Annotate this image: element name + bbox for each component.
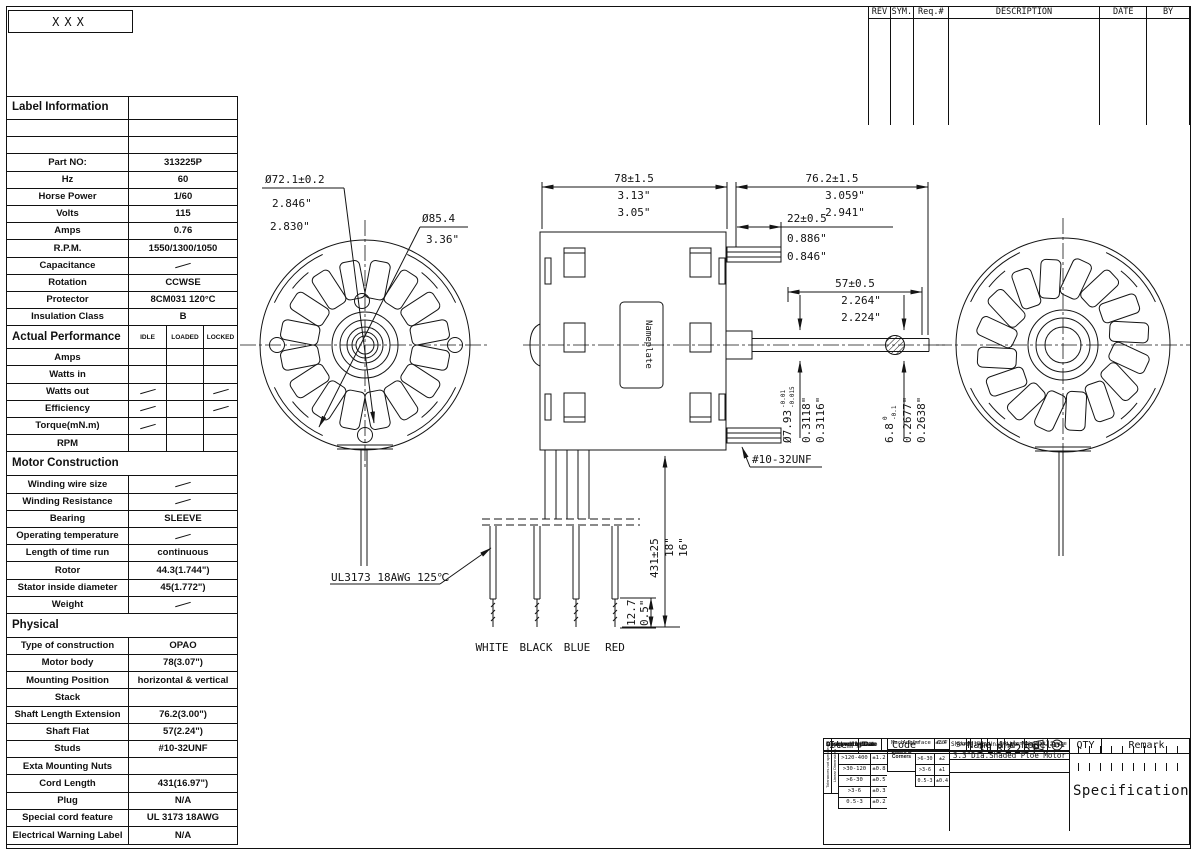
rev-header: BY <box>1147 6 1189 19</box>
spec-row: Hz60 <box>7 172 237 189</box>
spec-value: OPAO <box>129 638 237 654</box>
spec-row: Efficiency <box>7 401 237 418</box>
spec-cell: LOADED <box>166 326 203 348</box>
spec-label: Weight <box>7 597 129 613</box>
spec-value: 57(2.24") <box>129 724 237 740</box>
spec-value: B <box>129 309 237 325</box>
spec-value <box>129 97 237 119</box>
wire-color-red: RED <box>605 641 625 654</box>
spec-label: Bearing <box>7 511 129 527</box>
slash-mark <box>213 404 229 413</box>
dim-label: 18" <box>663 537 676 557</box>
tb-tolerance-cell: >120-400 <box>838 754 870 765</box>
spec-cell <box>203 435 237 451</box>
spec-value: 45(1.772") <box>129 580 237 596</box>
spec-row: Cord Length431(16.97") <box>7 775 237 792</box>
tb-approved-value <box>881 739 949 751</box>
spec-label: Actual Performance <box>7 326 129 348</box>
spec-cell <box>129 384 166 400</box>
spec-row <box>7 137 237 154</box>
dim-label: 2.224" <box>841 311 881 324</box>
dim-label: 2.846" <box>272 197 312 210</box>
spec-row: Studs#10-32UNF <box>7 741 237 758</box>
wire-spec-label: UL3173 18AWG 125℃ <box>331 571 449 584</box>
spec-row: RPM <box>7 435 237 452</box>
dim-shaft-extension: 76.2±1.5 <box>806 172 859 185</box>
spec-value: 115 <box>129 206 237 222</box>
dim-bolt-circle: Ø72.1±0.2 <box>265 173 325 186</box>
tb-unit-label: Unit <box>987 739 1004 751</box>
tb-specification-label: Specification <box>1070 779 1192 803</box>
dim-label: 3.36" <box>426 233 459 246</box>
spec-row: Shaft Length Extension76.2(3.00") <box>7 707 237 724</box>
spec-row: Type of constructionOPAO <box>7 638 237 655</box>
rev-column: BY <box>1146 6 1189 125</box>
spec-row: Winding Resistance <box>7 494 237 511</box>
dim-tolerance-lower: -0.015 <box>789 386 796 408</box>
dim-shaft-diameter: Ø7.93 <box>781 410 794 443</box>
dimension-lines <box>262 182 928 628</box>
slash-mark <box>213 387 229 396</box>
dim-label: 3.13" <box>617 189 650 202</box>
spec-cell <box>203 418 237 434</box>
spec-label: Protector <box>7 292 129 308</box>
spec-cell <box>203 384 237 400</box>
rev-column: Req.# <box>913 6 948 125</box>
spec-value: #10-32UNF <box>129 741 237 757</box>
spec-label: Stator inside diameter <box>7 580 129 596</box>
spec-cell <box>166 366 203 382</box>
dim-label: 16" <box>677 537 690 557</box>
dim-label: 2.830" <box>270 220 310 233</box>
spec-value <box>129 758 237 774</box>
spec-row: Amps <box>7 349 237 366</box>
tb-tolerance-cell: ±0.3 <box>870 787 887 798</box>
dim-label: 2.941" <box>825 206 865 219</box>
spec-row <box>7 120 237 137</box>
spec-row: Capacitance <box>7 258 237 275</box>
spec-row: RotationCCWSE <box>7 275 237 292</box>
wire-color-white: WHITE <box>475 641 508 654</box>
rev-header: DATE <box>1100 6 1146 19</box>
spec-value <box>129 137 237 153</box>
spec-row: Torque(mN.m) <box>7 418 237 435</box>
spec-cell <box>166 384 203 400</box>
spec-row: Part NO:313225P <box>7 154 237 171</box>
slash-mark <box>140 422 156 431</box>
spec-row: Operating temperature <box>7 528 237 545</box>
spec-value <box>129 528 237 544</box>
spec-row: Watts in <box>7 366 237 383</box>
spec-value: SLEEVE <box>129 511 237 527</box>
spec-label: Special cord feature <box>7 810 129 826</box>
dim-outer-diameter: Ø85.4 <box>422 212 455 225</box>
side-view-generated <box>490 248 725 627</box>
slash-mark <box>175 600 191 609</box>
spec-label: Mounting Position <box>7 672 129 688</box>
spec-value: N/A <box>129 827 237 844</box>
spec-row: PlugN/A <box>7 793 237 810</box>
wire-color-black: BLACK <box>519 641 552 654</box>
spec-row: Volts115 <box>7 206 237 223</box>
front-view-stator <box>240 220 490 566</box>
spec-value <box>129 494 237 510</box>
dim-tolerance-upper: -0.01 <box>780 390 787 408</box>
tb-tolerance-cell: ±0.2 <box>870 798 887 809</box>
stud-thread-label: #10-32UNF <box>752 453 812 466</box>
tb-tolerance-cell: ±1 <box>934 765 949 776</box>
spec-label: Torque(mN.m) <box>7 418 129 434</box>
tb-tolerance-cell: 0.5-3 <box>838 798 870 809</box>
spec-row: Length of time runcontinuous <box>7 545 237 562</box>
slash-mark <box>175 261 191 270</box>
spec-label: Horse Power <box>7 189 129 205</box>
spec-row: Watts out <box>7 384 237 401</box>
tb-sign-label: Approved by/Date <box>826 742 877 748</box>
spec-value: 0.76 <box>129 223 237 239</box>
spec-label: Electrical Warning Label <box>7 827 129 844</box>
slash-mark <box>140 387 156 396</box>
spec-label: Winding Resistance <box>7 494 129 510</box>
remark-ticks <box>1078 763 1184 771</box>
dim-label: 3.05" <box>617 206 650 219</box>
specification-table: Label InformationPart NO:313225PHz60Hors… <box>6 96 238 845</box>
spec-cell <box>129 401 166 417</box>
spec-label: Rotation <box>7 275 129 291</box>
spec-label: Efficiency <box>7 401 129 417</box>
tb-tolerance-cell: 0.5-3 <box>915 776 934 787</box>
spec-row: Physical <box>7 614 237 638</box>
spec-label: RPM <box>7 435 129 451</box>
spec-row: Rotor44.3(1.744") <box>7 562 237 579</box>
title-block: Item Code Name and Model QTY Remark Tole… <box>823 738 1190 845</box>
spec-value: 76.2(3.00") <box>129 707 237 723</box>
spec-label: Hz <box>7 172 129 188</box>
spec-row: BearingSLEEVE <box>7 511 237 528</box>
spec-label: Label Information <box>7 97 129 119</box>
rev-header: REV <box>869 6 890 19</box>
spec-label: Exta Mounting Nuts <box>7 758 129 774</box>
tb-projection-cell <box>1024 739 1069 751</box>
spec-row: Actual PerformanceIDLELOADEDLOCKED <box>7 326 237 349</box>
spec-value: N/A <box>129 793 237 809</box>
projection-symbol-icon <box>1025 739 1069 751</box>
spec-cell <box>129 349 166 365</box>
spec-row: Stack <box>7 689 237 706</box>
spec-cell <box>166 435 203 451</box>
dim-tolerance-lower: -0.1 <box>891 405 898 420</box>
rev-column: REV <box>868 6 890 125</box>
tb-sheet-label: Sheet <box>950 739 970 751</box>
spec-value <box>129 258 237 274</box>
tb-unit-value: mm <box>1004 739 1024 751</box>
spec-row: Mounting Positionhorizontal & vertical <box>7 672 237 689</box>
dim-stud-length: 22±0.5 <box>787 212 827 225</box>
spec-row: Label Information <box>7 97 237 120</box>
spec-value: 1550/1300/1050 <box>129 240 237 256</box>
dim-body-length: 78±1.5 <box>614 172 654 185</box>
tb-tolerance-cell: ±0.8 <box>870 765 887 776</box>
dim-label: 0.3118" <box>800 397 813 443</box>
spec-row: R.P.M.1550/1300/1050 <box>7 240 237 257</box>
rev-column: SYM. <box>890 6 913 125</box>
spec-value <box>129 689 237 705</box>
spec-value: 44.3(1.744") <box>129 562 237 578</box>
spec-label: Amps <box>7 349 129 365</box>
dim-label: 3.059" <box>825 189 865 202</box>
mounting-stud-bottom <box>727 428 781 443</box>
spec-label: Volts <box>7 206 129 222</box>
spec-value: CCWSE <box>129 275 237 291</box>
tb-middle-zone: 3.3"Dia.Shaded Ploe Motor 313225P Stage … <box>949 739 1069 831</box>
spec-label: Rotor <box>7 562 129 578</box>
dim-tolerance-upper: 0 <box>882 416 889 420</box>
tb-tolerance-cell: >6-30 <box>838 776 870 787</box>
revision-table: REV SYM. Req.# DESCRIPTION DATE BY <box>868 6 1190 125</box>
spec-label: Plug <box>7 793 129 809</box>
dim-cord-length: 431±25 <box>648 538 661 578</box>
slash-mark <box>175 532 191 541</box>
tb-tolerance-cell: ±0.5 <box>870 776 887 787</box>
spec-cell <box>129 435 166 451</box>
slash-mark <box>175 480 191 489</box>
spec-row: Winding wire size <box>7 476 237 493</box>
slash-mark <box>175 497 191 506</box>
spec-row: Amps0.76 <box>7 223 237 240</box>
spec-value: continuous <box>129 545 237 561</box>
dim-label: 0.5" <box>638 600 651 627</box>
spec-label: Type of construction <box>7 638 129 654</box>
tb-sheet-value: 1/1 <box>970 739 987 751</box>
dim-shaft-flat: 57±0.5 <box>835 277 875 290</box>
spec-row: Special cord featureUL 3173 18AWG <box>7 810 237 827</box>
spec-row: Motor Construction <box>7 452 237 476</box>
engineering-drawing-page: { "frame": {"corner_label": "XXX"}, "rev… <box>0 0 1197 855</box>
spec-label: Insulation Class <box>7 309 129 325</box>
spec-row: Horse Power1/60 <box>7 189 237 206</box>
spec-value: 8CM031 120°C <box>129 292 237 308</box>
tb-tolerance-cell: >3-6 <box>915 765 934 776</box>
mounting-stud-top <box>727 247 781 262</box>
spec-row: Stator inside diameter45(1.772") <box>7 580 237 597</box>
spec-cell <box>166 349 203 365</box>
spec-label: Motor Construction <box>7 452 237 475</box>
spec-label: Watts out <box>7 384 129 400</box>
dim-strip-length: 12.7 <box>625 600 638 627</box>
spec-cell: IDLE <box>129 326 166 348</box>
spec-label <box>7 120 129 136</box>
spec-label: Motor body <box>7 655 129 671</box>
remark-ticks <box>1078 746 1184 754</box>
spec-row: Insulation ClassB <box>7 309 237 326</box>
spec-value: 313225P <box>129 154 237 170</box>
rev-column: DESCRIPTION <box>948 6 1100 125</box>
spec-row: Motor body78(3.07") <box>7 655 237 672</box>
spec-label: Studs <box>7 741 129 757</box>
dim-label: 0.2677" <box>901 397 914 443</box>
spec-value: horizontal & vertical <box>129 672 237 688</box>
spec-value: UL 3173 18AWG <box>129 810 237 826</box>
dim-label: 2.264" <box>841 294 881 307</box>
rear-view-stator <box>936 218 1190 556</box>
tb-remark-zone: Specification <box>1069 739 1191 831</box>
spec-label: Watts in <box>7 366 129 382</box>
spec-value <box>129 120 237 136</box>
tb-tolerance-cell: ±0.4 <box>934 776 949 787</box>
spec-cell: LOCKED <box>203 326 237 348</box>
spec-label: Physical <box>7 614 237 637</box>
spec-label: Part NO: <box>7 154 129 170</box>
spec-row: Weight <box>7 597 237 614</box>
spec-cell <box>203 349 237 365</box>
dim-label: 0.846" <box>787 250 827 263</box>
tb-tolerance-cell: >6-30 <box>915 754 934 765</box>
spec-cell <box>203 366 237 382</box>
tb-tol-rot2: Linear Dimensions <box>833 749 837 782</box>
tb-tolerance-cell: ±1.2 <box>870 754 887 765</box>
spec-label: R.P.M. <box>7 240 129 256</box>
spec-label: Capacitance <box>7 258 129 274</box>
dim-flat-diameter: 6.8 <box>883 423 896 443</box>
spec-label <box>7 137 129 153</box>
spec-label: Winding wire size <box>7 476 129 492</box>
title-box-label: XXX <box>52 15 89 29</box>
spec-cell <box>166 401 203 417</box>
nameplate-label: Nameplate <box>643 320 653 369</box>
title-box: XXX <box>8 10 133 33</box>
spec-row: Shaft Flat57(2.24") <box>7 724 237 741</box>
dim-label: 0.2638" <box>915 397 928 443</box>
spec-label: Length of time run <box>7 545 129 561</box>
dim-label: 0.886" <box>787 232 827 245</box>
spec-label: Cord Length <box>7 775 129 791</box>
tb-tolerance-cell: ±2 <box>934 754 949 765</box>
spec-row: Exta Mounting Nuts <box>7 758 237 775</box>
dim-label: 0.3116" <box>814 397 827 443</box>
spec-cell <box>129 366 166 382</box>
spec-label: Stack <box>7 689 129 705</box>
spec-value: 60 <box>129 172 237 188</box>
spec-row: Electrical Warning LabelN/A <box>7 827 237 844</box>
spec-value <box>129 476 237 492</box>
rev-column: DATE <box>1099 6 1146 125</box>
rev-header: Req.# <box>914 6 948 19</box>
spec-cell <box>129 418 166 434</box>
tb-tolerance-cell: >30-120 <box>838 765 870 776</box>
slash-mark <box>140 404 156 413</box>
spec-value: 78(3.07") <box>129 655 237 671</box>
tb-approved-by: Approved by/Date <box>824 739 881 751</box>
spec-value <box>129 597 237 613</box>
spec-row: Protector8CM031 120°C <box>7 292 237 309</box>
rev-header: DESCRIPTION <box>949 6 1100 19</box>
side-view <box>482 232 948 525</box>
spec-cell <box>203 401 237 417</box>
spec-label: Shaft Flat <box>7 724 129 740</box>
spec-label: Operating temperature <box>7 528 129 544</box>
rev-header: SYM. <box>891 6 913 19</box>
tb-tolerance-cell: >3-6 <box>838 787 870 798</box>
spec-cell <box>166 418 203 434</box>
spec-label: Shaft Length Extension <box>7 707 129 723</box>
spec-label: Amps <box>7 223 129 239</box>
spec-value: 431(16.97") <box>129 775 237 791</box>
wire-color-blue: BLUE <box>564 641 591 654</box>
spec-value: 1/60 <box>129 189 237 205</box>
